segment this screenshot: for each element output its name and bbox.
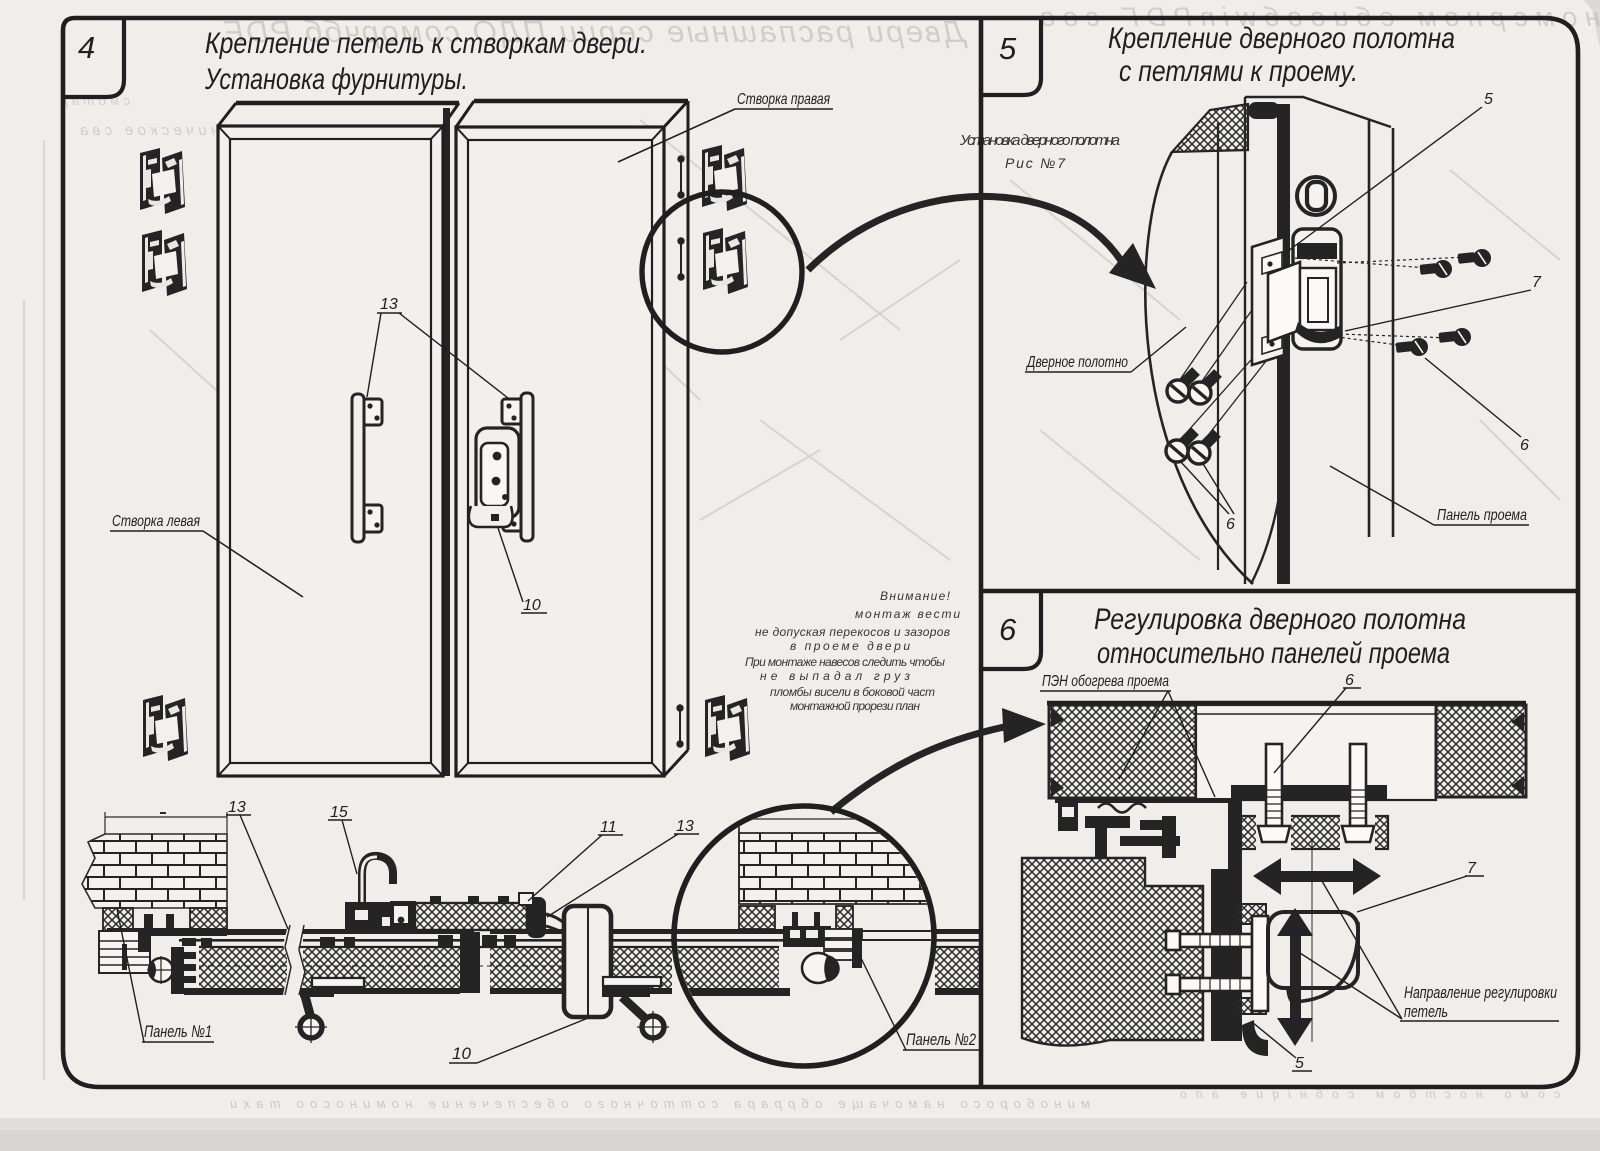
svg-text:пломбы висели в боковой част: пломбы висели в боковой част xyxy=(770,685,935,699)
svg-text:13: 13 xyxy=(380,296,398,313)
svg-text:15: 15 xyxy=(330,804,348,821)
svg-text:При монтаже навесов следить чт: При монтаже навесов следить чтобы xyxy=(745,655,945,669)
svg-text:монтаж вести: монтаж вести xyxy=(855,607,960,621)
svg-text:13: 13 xyxy=(676,818,694,835)
svg-text:Регулировка дверного полотна: Регулировка дверного полотна xyxy=(1094,603,1466,636)
svg-text:5: 5 xyxy=(1484,91,1493,108)
svg-text:10: 10 xyxy=(523,597,541,614)
svg-text:Панель №2: Панель №2 xyxy=(906,1030,976,1049)
svg-text:не выпадал груз: не выпадал груз xyxy=(760,669,910,683)
svg-text:петель: петель xyxy=(1404,1003,1448,1021)
svg-text:7: 7 xyxy=(1532,274,1542,291)
svg-text:монтажной прорези план: монтажной прорези план xyxy=(790,699,920,713)
svg-text:Направление регулировки: Направление регулировки xyxy=(1404,984,1557,1002)
svg-text:Установка фурнитуры.: Установка фурнитуры. xyxy=(204,63,468,96)
svg-text:Панель №1: Панель №1 xyxy=(144,1022,212,1041)
svg-text:Крепление дверного полотна: Крепление дверного полотна xyxy=(1108,22,1455,55)
svg-text:Створка левая: Створка левая xyxy=(112,513,200,530)
svg-text:Панель проема: Панель проема xyxy=(1437,507,1527,524)
svg-text:относительно панелей проема: относительно панелей проема xyxy=(1097,637,1450,670)
svg-text:не допуская перекосов и зазоро: не допуская перекосов и зазоров xyxy=(755,625,950,639)
svg-text:6: 6 xyxy=(1226,516,1235,533)
svg-text:10: 10 xyxy=(452,1044,471,1063)
svg-text:6: 6 xyxy=(1520,437,1529,454)
svg-text:Створка правая: Створка правая xyxy=(737,91,830,108)
svg-text:5: 5 xyxy=(999,31,1017,66)
svg-text:Внимание!: Внимание! xyxy=(880,589,951,603)
svg-text:11: 11 xyxy=(600,819,617,836)
svg-text:6: 6 xyxy=(999,612,1017,647)
svg-text:ПЭН обогрева проема: ПЭН обогрева проема xyxy=(1042,673,1169,690)
svg-text:6: 6 xyxy=(1345,672,1354,689)
svg-text:13: 13 xyxy=(228,799,246,816)
svg-text:Дверное полотно: Дверное полотно xyxy=(1025,354,1128,371)
svg-text:Рис №7: Рис №7 xyxy=(1005,155,1066,171)
svg-text:7: 7 xyxy=(1467,860,1477,877)
svg-text:Крепление петель к створкам дв: Крепление петель к створкам двери. xyxy=(205,27,647,60)
svg-text:с петлями к проему.: с петлями к проему. xyxy=(1119,55,1358,88)
svg-text:4: 4 xyxy=(78,30,95,65)
